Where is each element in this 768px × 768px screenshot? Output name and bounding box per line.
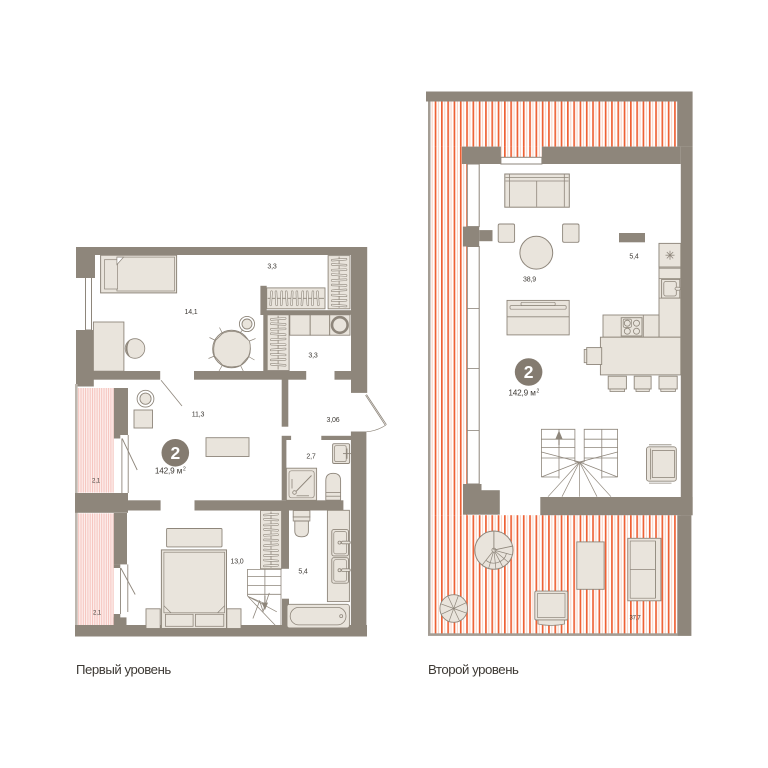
svg-text:5,4: 5,4 (298, 569, 308, 576)
svg-text:142,9 м: 142,9 м (155, 467, 183, 476)
svg-text:2,7: 2,7 (306, 454, 316, 461)
svg-text:2: 2 (171, 443, 181, 463)
svg-text:14,1: 14,1 (184, 309, 197, 316)
svg-text:Второй уровень: Второй уровень (428, 662, 519, 677)
svg-text:11,3: 11,3 (192, 412, 205, 419)
svg-text:37,7: 37,7 (629, 616, 641, 622)
svg-text:3,3: 3,3 (267, 264, 277, 271)
svg-text:2: 2 (536, 389, 539, 395)
svg-text:2,1: 2,1 (92, 479, 101, 485)
svg-text:Первый уровень: Первый уровень (76, 662, 171, 677)
svg-text:13,0: 13,0 (230, 559, 243, 566)
svg-text:142,9 м: 142,9 м (508, 389, 536, 398)
svg-text:38,9: 38,9 (523, 277, 536, 284)
svg-text:3,3: 3,3 (308, 353, 318, 360)
svg-text:3,06: 3,06 (326, 417, 339, 424)
svg-text:2: 2 (524, 362, 534, 382)
svg-text:5,4: 5,4 (629, 254, 639, 261)
svg-text:2: 2 (183, 467, 186, 473)
svg-text:2,1: 2,1 (93, 611, 102, 617)
